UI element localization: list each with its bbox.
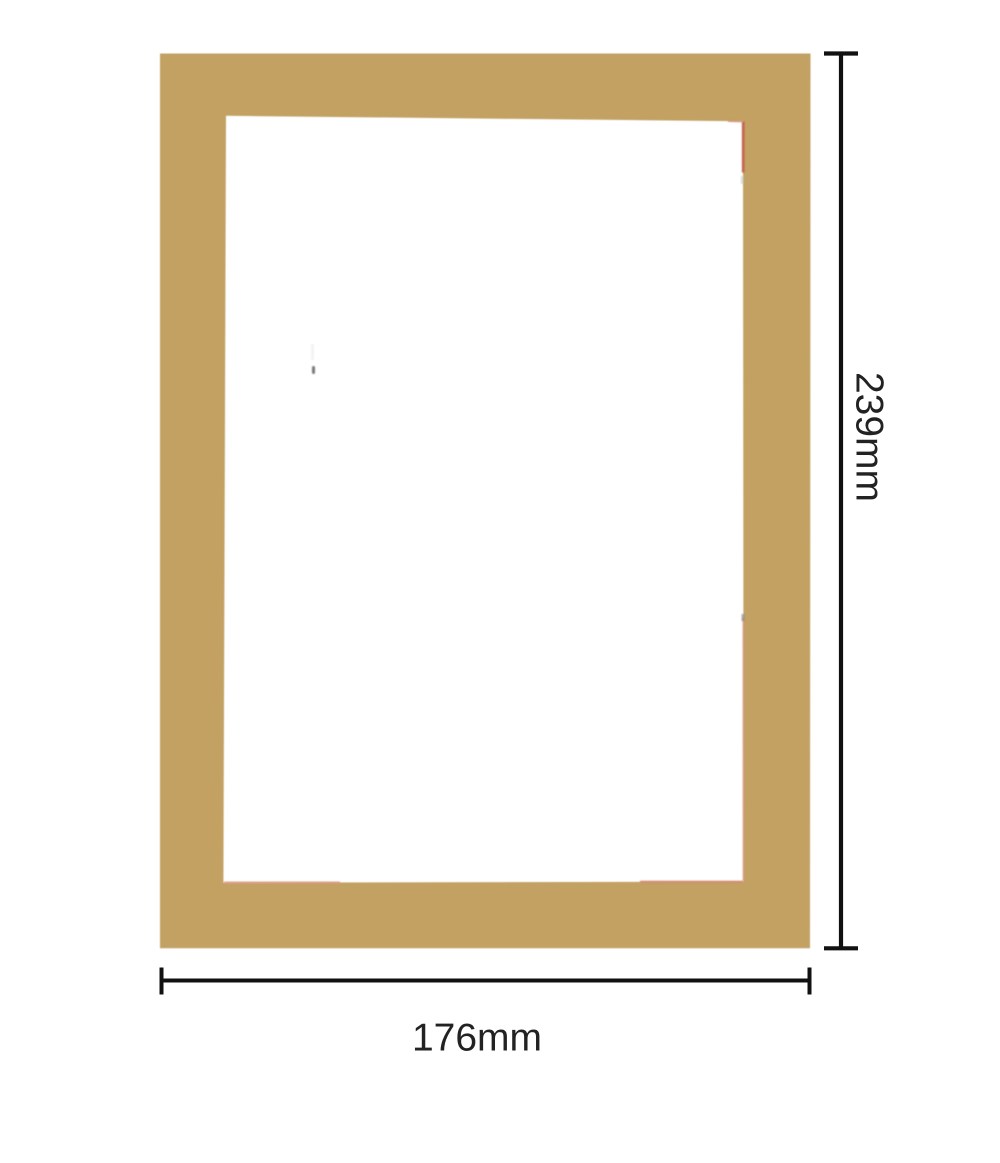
svg-text:239mm: 239mm bbox=[848, 372, 891, 502]
svg-text:176mm: 176mm bbox=[412, 1017, 542, 1060]
